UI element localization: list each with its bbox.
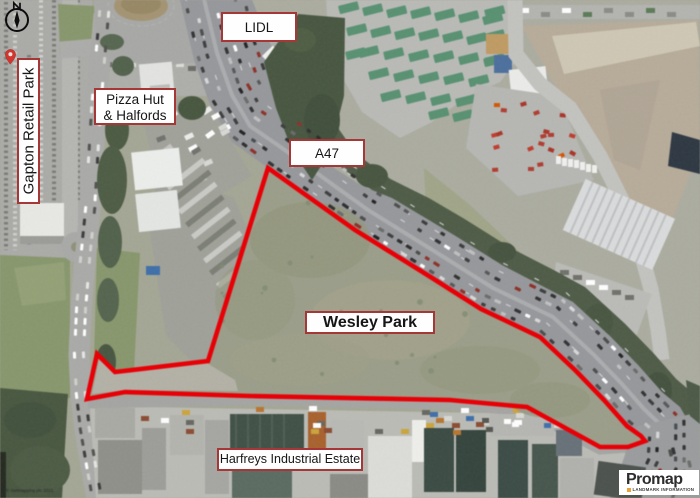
svg-text:© Getmapping plc 2021: © Getmapping plc 2021 <box>6 487 54 493</box>
